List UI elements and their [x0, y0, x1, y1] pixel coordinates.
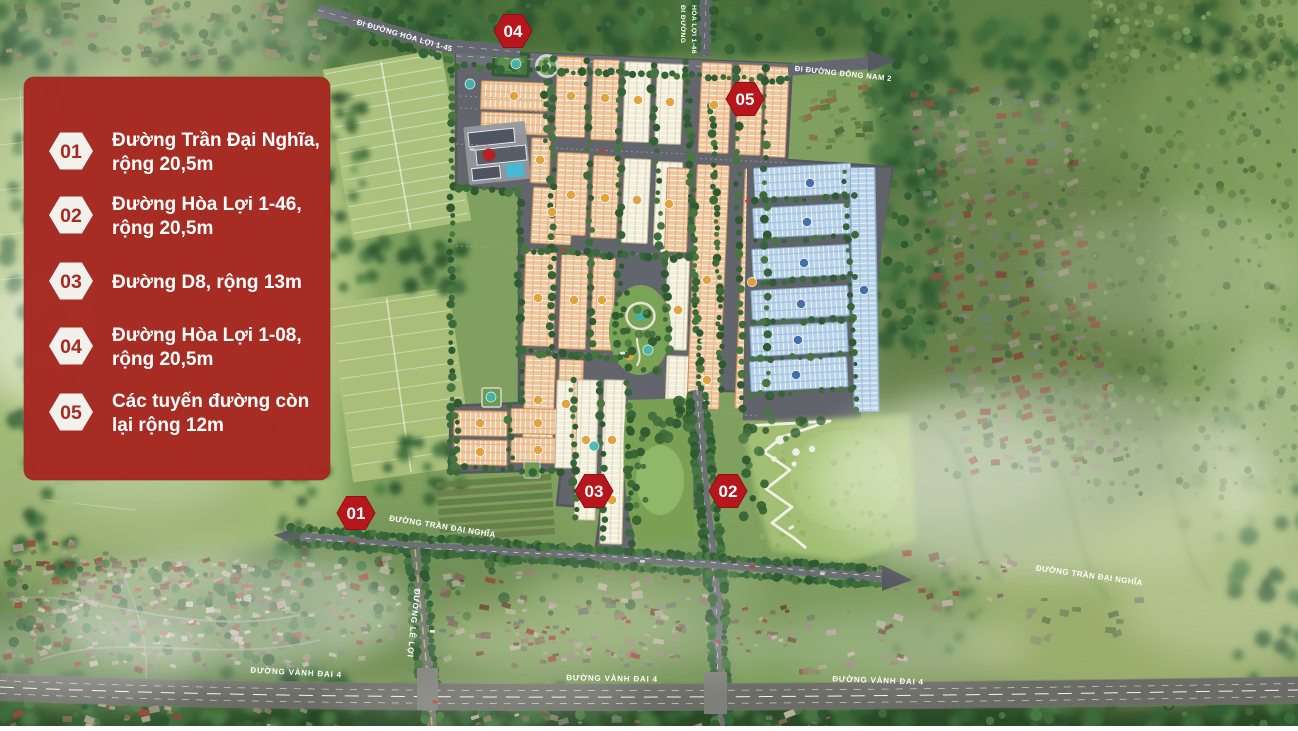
svg-text:ĐI ĐƯỜNG: ĐI ĐƯỜNG: [679, 5, 688, 43]
svg-text:ĐƯỜNG VÀNH ĐAI 4: ĐƯỜNG VÀNH ĐAI 4: [566, 673, 658, 684]
svg-text:04: 04: [504, 22, 523, 41]
svg-text:03: 03: [60, 271, 82, 293]
svg-text:Đường Hòa Lợi 1-46,: Đường Hòa Lợi 1-46,: [112, 194, 302, 215]
svg-text:Đường Hòa Lợi 1-08,: Đường Hòa Lợi 1-08,: [112, 325, 302, 346]
svg-text:Các tuyến đường còn: Các tuyến đường còn: [112, 391, 309, 412]
svg-text:03: 03: [585, 482, 604, 501]
svg-text:Đường D8, rộng 13m: Đường D8, rộng 13m: [112, 272, 302, 293]
svg-text:01: 01: [60, 141, 82, 163]
svg-text:HÒA LỢI 1-46: HÒA LỢI 1-46: [690, 5, 699, 54]
svg-text:Đường Trần Đại Nghĩa,: Đường Trần Đại Nghĩa,: [112, 130, 320, 151]
svg-text:05: 05: [60, 402, 82, 424]
svg-text:rộng 20,5m: rộng 20,5m: [112, 349, 213, 370]
svg-text:rộng 20,5m: rộng 20,5m: [112, 218, 213, 239]
svg-text:02: 02: [719, 482, 738, 501]
svg-text:05: 05: [736, 90, 755, 109]
svg-text:lại rộng 12m: lại rộng 12m: [112, 415, 224, 436]
svg-text:02: 02: [60, 205, 82, 227]
svg-text:01: 01: [347, 504, 366, 523]
svg-text:rộng 20,5m: rộng 20,5m: [112, 154, 213, 175]
svg-text:04: 04: [60, 336, 82, 358]
